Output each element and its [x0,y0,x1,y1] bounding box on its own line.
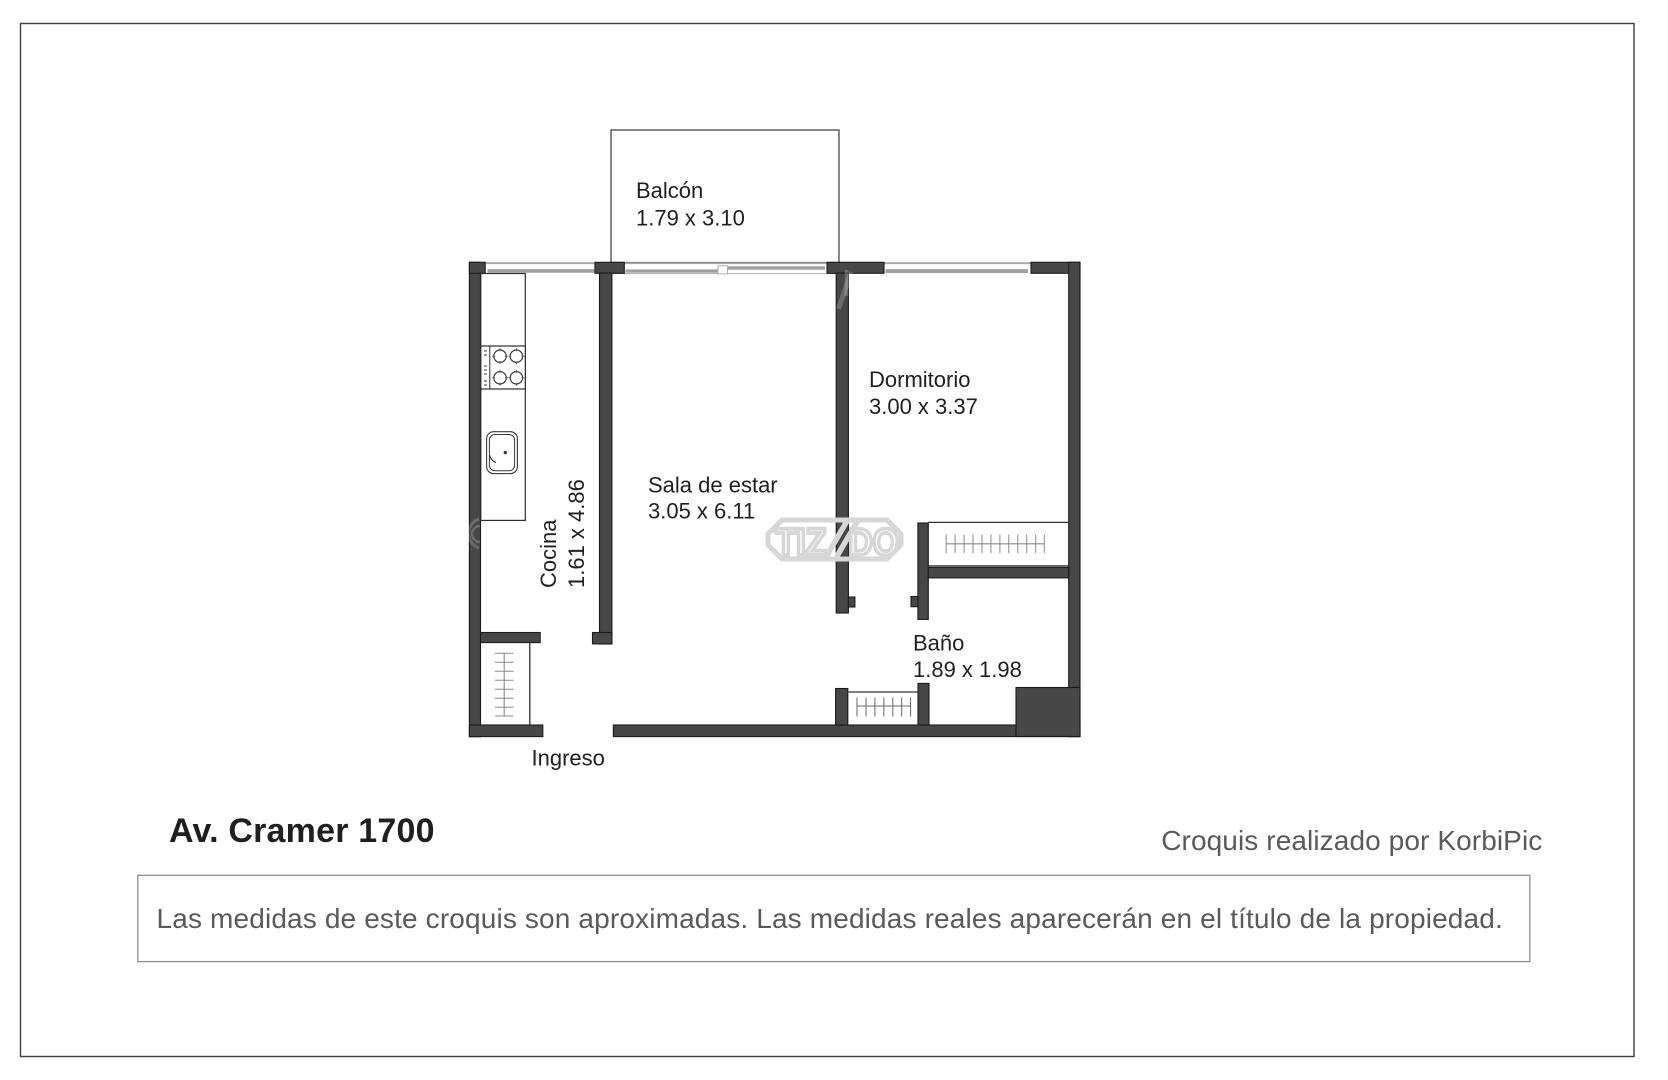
svg-text:Balcón: Balcón [636,178,703,203]
svg-text:Ingreso: Ingreso [532,746,605,771]
svg-text:3.05 x 6.11: 3.05 x 6.11 [648,499,755,524]
svg-text:1.61 x 4.86: 1.61 x 4.86 [564,479,589,588]
svg-text:Baño: Baño [913,631,964,656]
svg-text:Las medidas de este croquis so: Las medidas de este croquis son aproxima… [157,903,1503,934]
svg-text:1.89 x 1.98: 1.89 x 1.98 [913,657,1022,682]
svg-text:TIZ: TIZ [776,522,827,564]
svg-text:Sala de estar: Sala de estar [648,473,778,498]
svg-text:Croquis realizado por KorbiPic: Croquis realizado por KorbiPic [1161,825,1542,856]
svg-text:1.79 x 3.10: 1.79 x 3.10 [636,205,745,230]
svg-text:Dormitorio: Dormitorio [869,367,970,392]
svg-text:Cocina: Cocina [536,519,561,588]
svg-text:3.00 x 3.37: 3.00 x 3.37 [869,394,978,419]
svg-text:Av. Cramer 1700: Av. Cramer 1700 [169,812,435,850]
